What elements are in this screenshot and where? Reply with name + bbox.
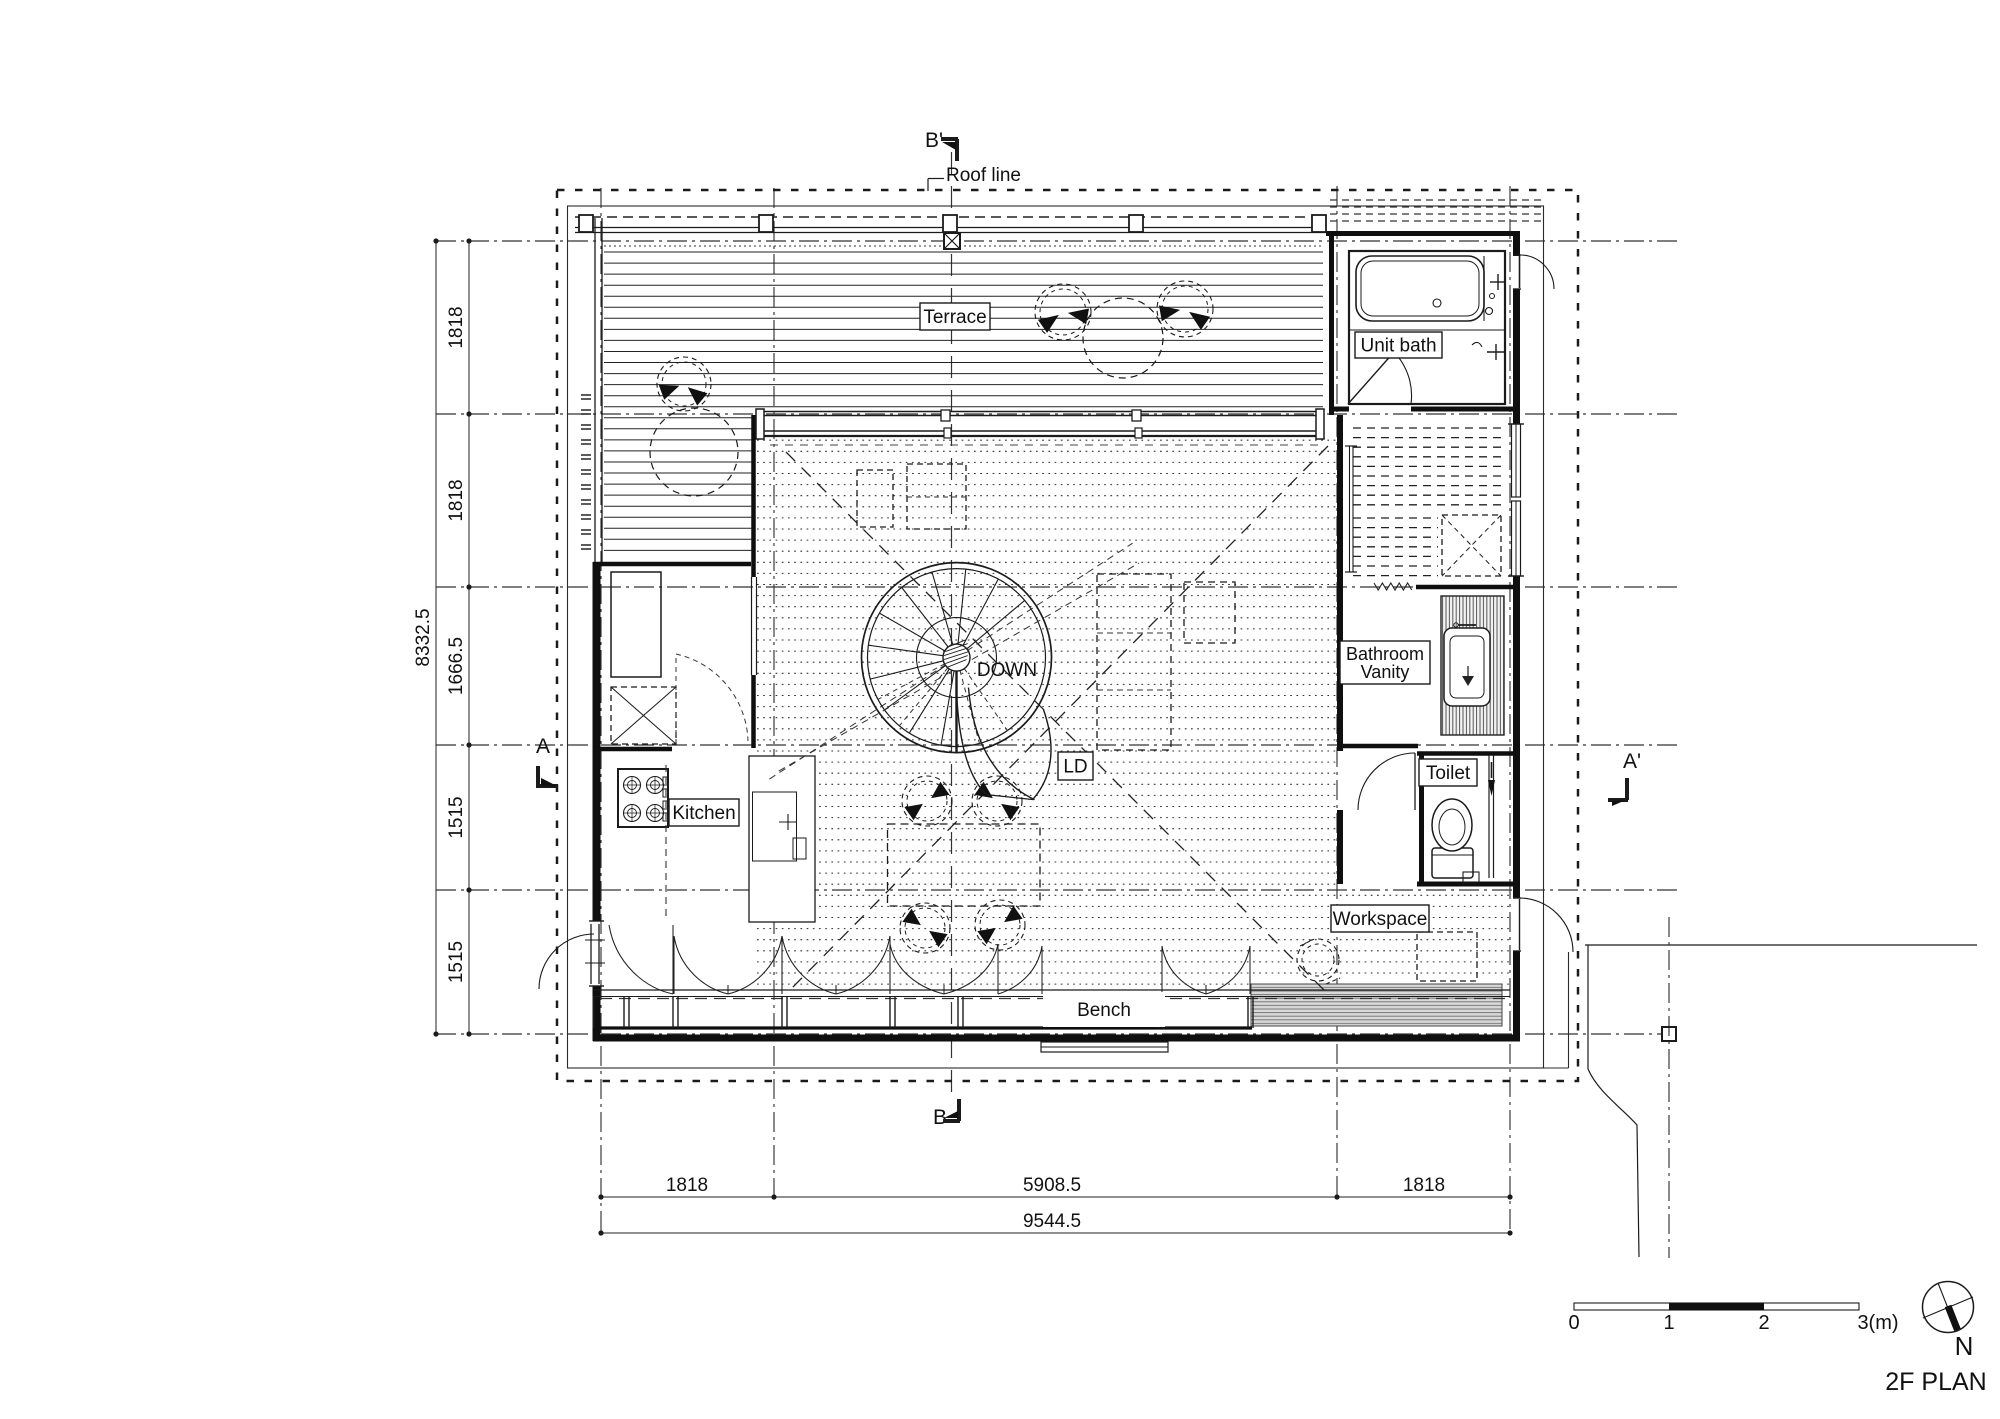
svg-text:A': A' xyxy=(1623,750,1641,773)
svg-text:2F PLAN: 2F PLAN xyxy=(1885,1368,1986,1396)
svg-text:1818: 1818 xyxy=(1403,1175,1445,1196)
svg-text:5908.5: 5908.5 xyxy=(1023,1175,1081,1196)
svg-text:1818: 1818 xyxy=(446,479,467,521)
svg-text:Bench: Bench xyxy=(1077,1000,1131,1021)
svg-text:Bathroom: Bathroom xyxy=(1346,644,1424,664)
svg-text:LD: LD xyxy=(1063,757,1087,778)
svg-text:B: B xyxy=(933,1106,947,1129)
svg-text:Roof line: Roof line xyxy=(946,165,1021,186)
svg-text:1666.5: 1666.5 xyxy=(446,637,467,695)
svg-text:Vanity: Vanity xyxy=(1361,662,1410,682)
svg-text:Unit bath: Unit bath xyxy=(1360,336,1436,357)
svg-text:DOWN: DOWN xyxy=(977,660,1037,681)
svg-text:Terrace: Terrace xyxy=(923,307,986,328)
svg-text:1818: 1818 xyxy=(446,306,467,348)
svg-text:Toilet: Toilet xyxy=(1426,763,1471,784)
svg-text:1: 1 xyxy=(1663,1312,1674,1334)
svg-text:1818: 1818 xyxy=(666,1175,708,1196)
svg-text:3(m): 3(m) xyxy=(1857,1312,1898,1334)
svg-text:1515: 1515 xyxy=(446,796,467,838)
svg-text:9544.5: 9544.5 xyxy=(1023,1211,1081,1232)
svg-text:B': B' xyxy=(925,129,943,152)
svg-text:A: A xyxy=(536,735,550,758)
svg-text:N: N xyxy=(1955,1331,1974,1361)
svg-text:0: 0 xyxy=(1568,1312,1579,1334)
svg-text:8332.5: 8332.5 xyxy=(413,608,434,666)
svg-text:1515: 1515 xyxy=(446,941,467,983)
svg-text:Workspace: Workspace xyxy=(1333,909,1428,930)
svg-text:Kitchen: Kitchen xyxy=(672,803,735,824)
svg-text:2: 2 xyxy=(1758,1312,1769,1334)
